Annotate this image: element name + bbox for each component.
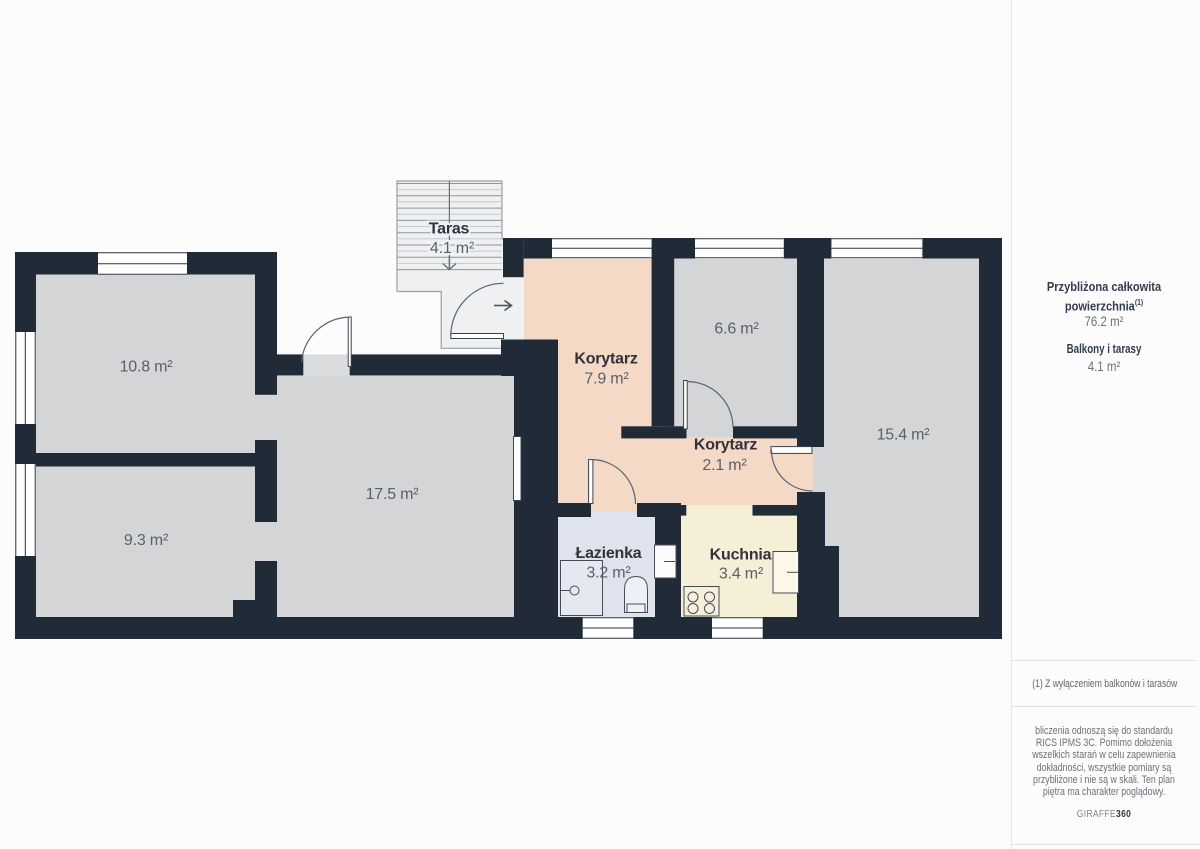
svg-text:4.1 m²: 4.1 m² [430, 240, 475, 257]
svg-text:6.6 m²: 6.6 m² [714, 321, 759, 338]
svg-text:10.8 m²: 10.8 m² [120, 359, 174, 376]
svg-text:15.4 m²: 15.4 m² [877, 426, 931, 443]
svg-text:3.4 m²: 3.4 m² [719, 566, 764, 583]
svg-text:17.5 m²: 17.5 m² [366, 486, 420, 503]
svg-text:Korytarz: Korytarz [694, 437, 758, 454]
svg-text:Taras: Taras [429, 221, 470, 238]
svg-text:Kuchnia: Kuchnia [710, 547, 772, 564]
svg-text:9.3 m²: 9.3 m² [124, 532, 169, 549]
svg-text:Korytarz: Korytarz [574, 350, 638, 367]
svg-text:Łazienka: Łazienka [576, 545, 642, 562]
svg-text:7.9 m²: 7.9 m² [584, 370, 629, 387]
svg-text:2.1 m²: 2.1 m² [702, 457, 747, 474]
svg-text:3.2 m²: 3.2 m² [586, 565, 631, 582]
